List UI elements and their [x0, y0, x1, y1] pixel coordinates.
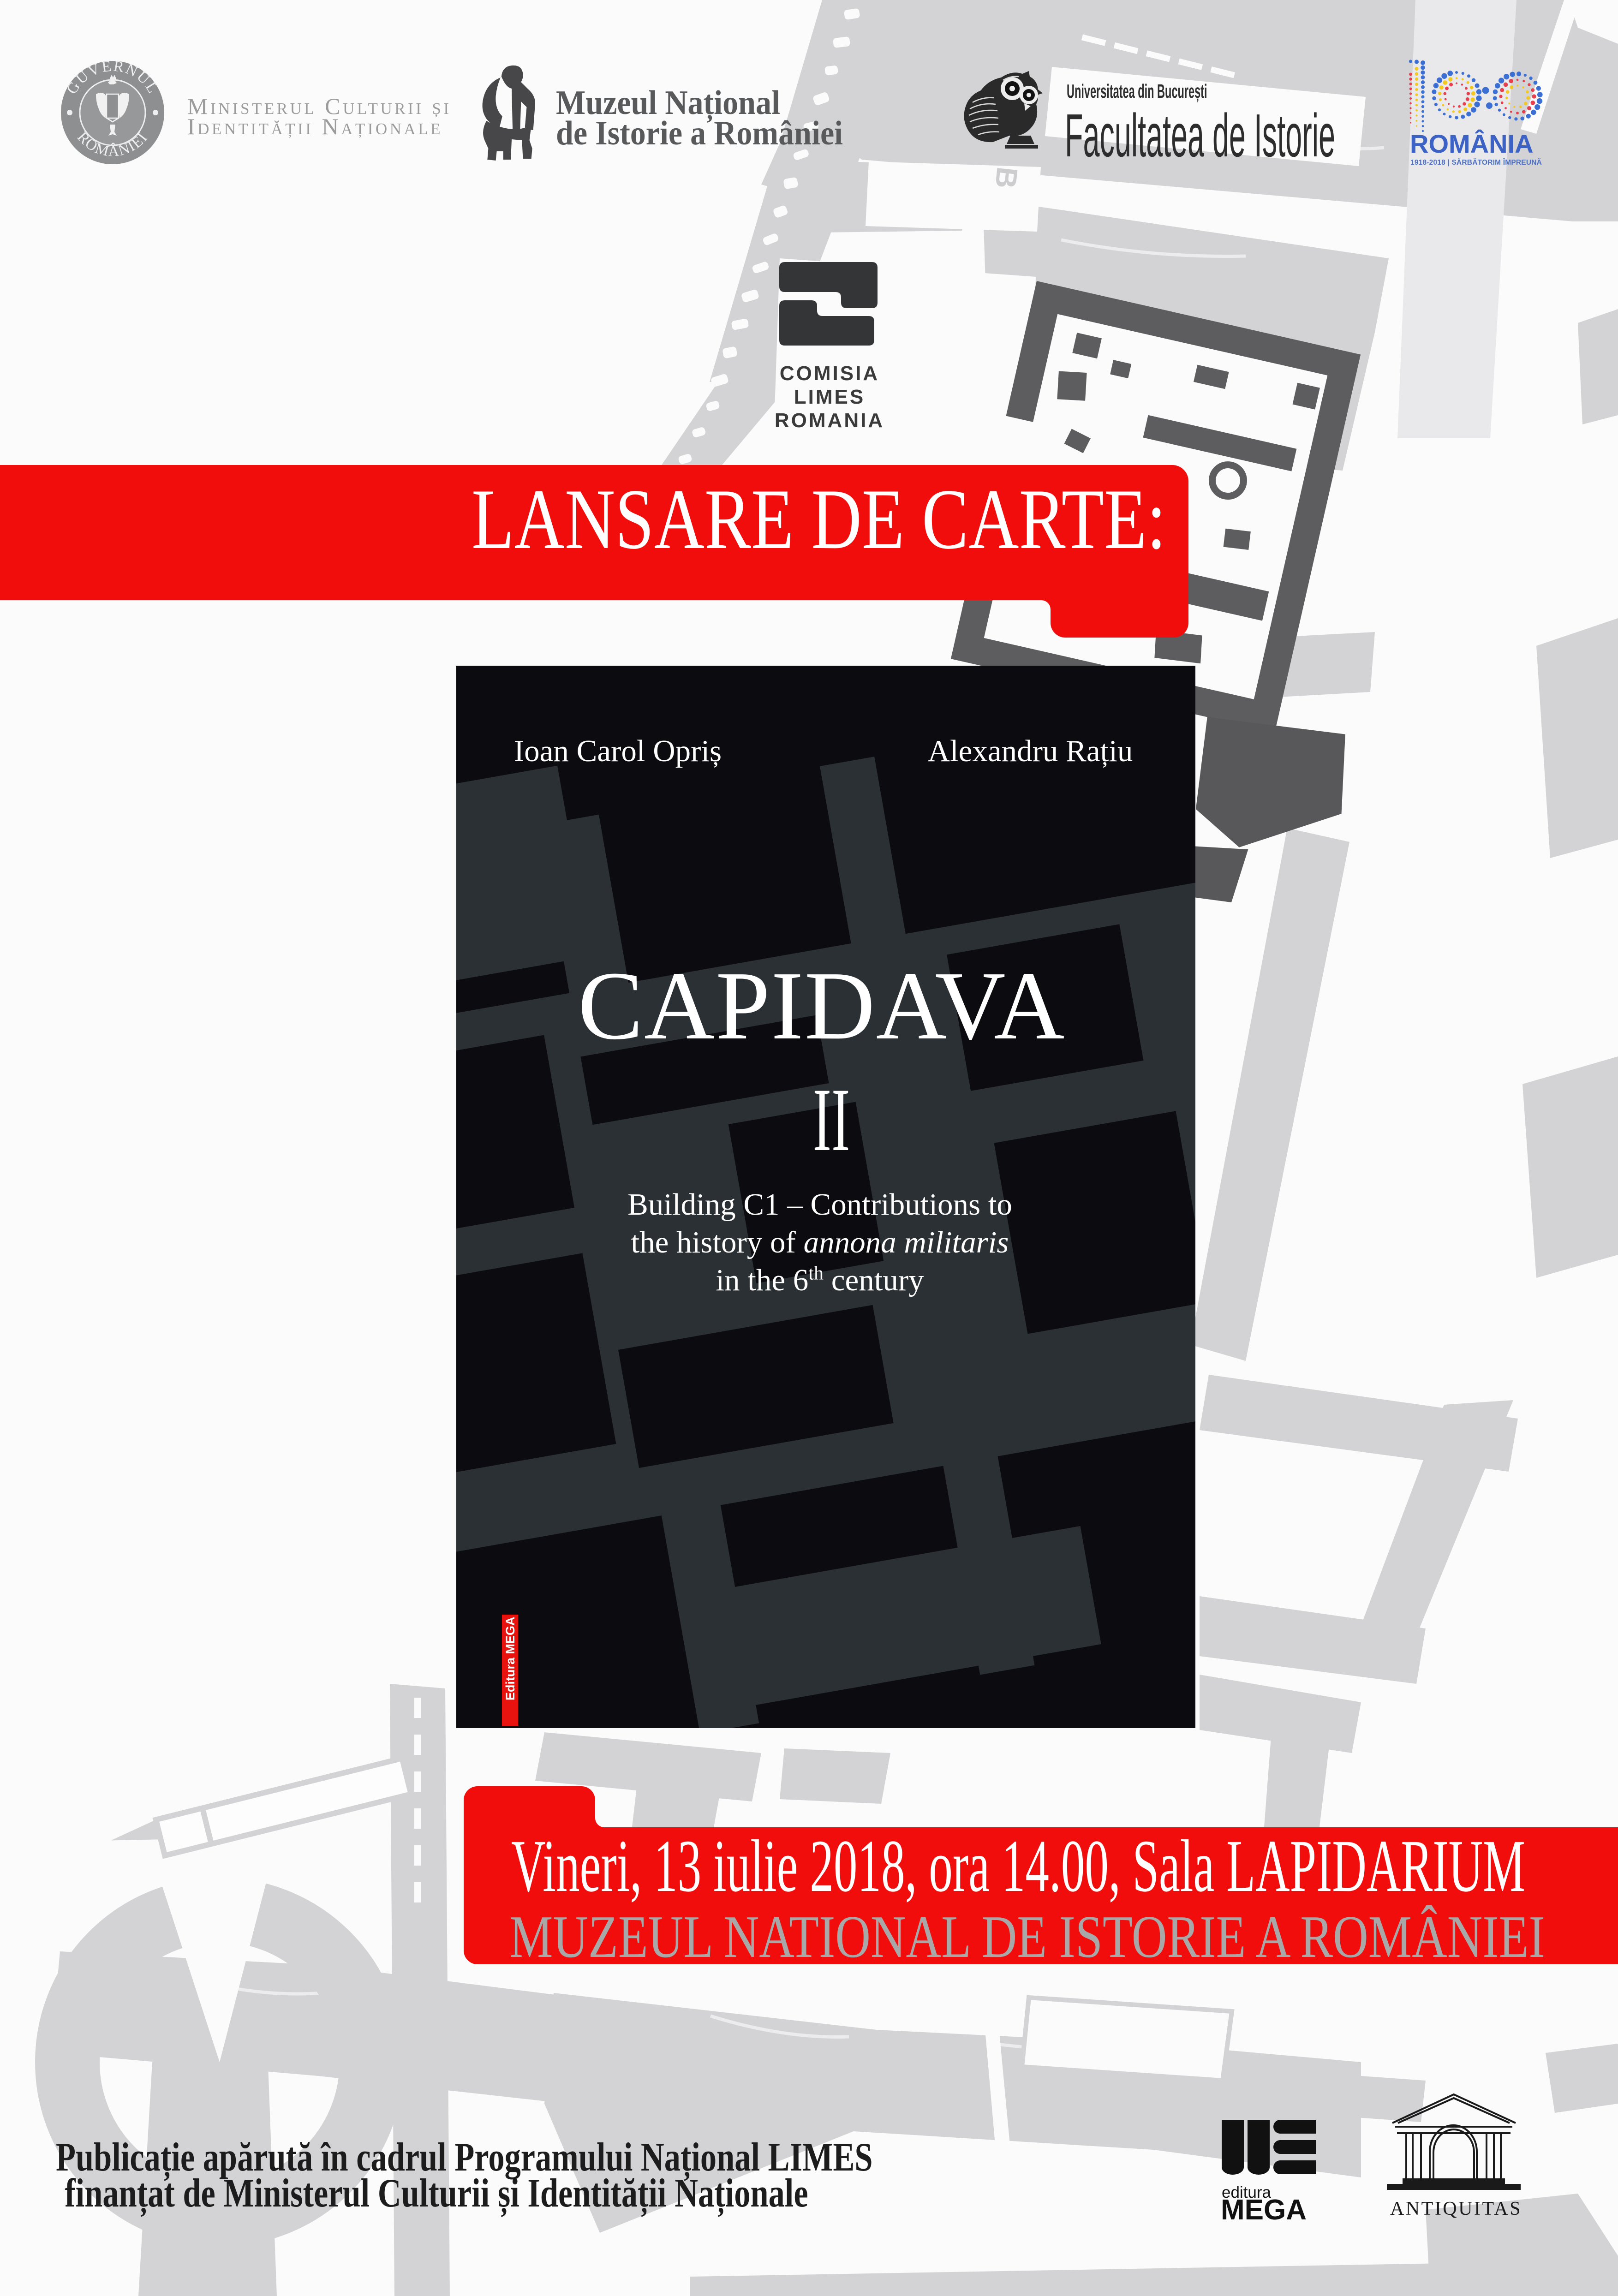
svg-text:MEGA: MEGA — [1221, 2194, 1307, 2224]
svg-text:ANTIQUITAS: ANTIQUITAS — [1390, 2198, 1522, 2219]
svg-text:1918-2018 | SĂRBĂTORIM ÎMPREUN: 1918-2018 | SĂRBĂTORIM ÎMPREUNĂ — [1410, 158, 1542, 167]
svg-text:B: B — [989, 166, 1024, 190]
svg-text:ROMÂNIA: ROMÂNIA — [1410, 129, 1534, 158]
